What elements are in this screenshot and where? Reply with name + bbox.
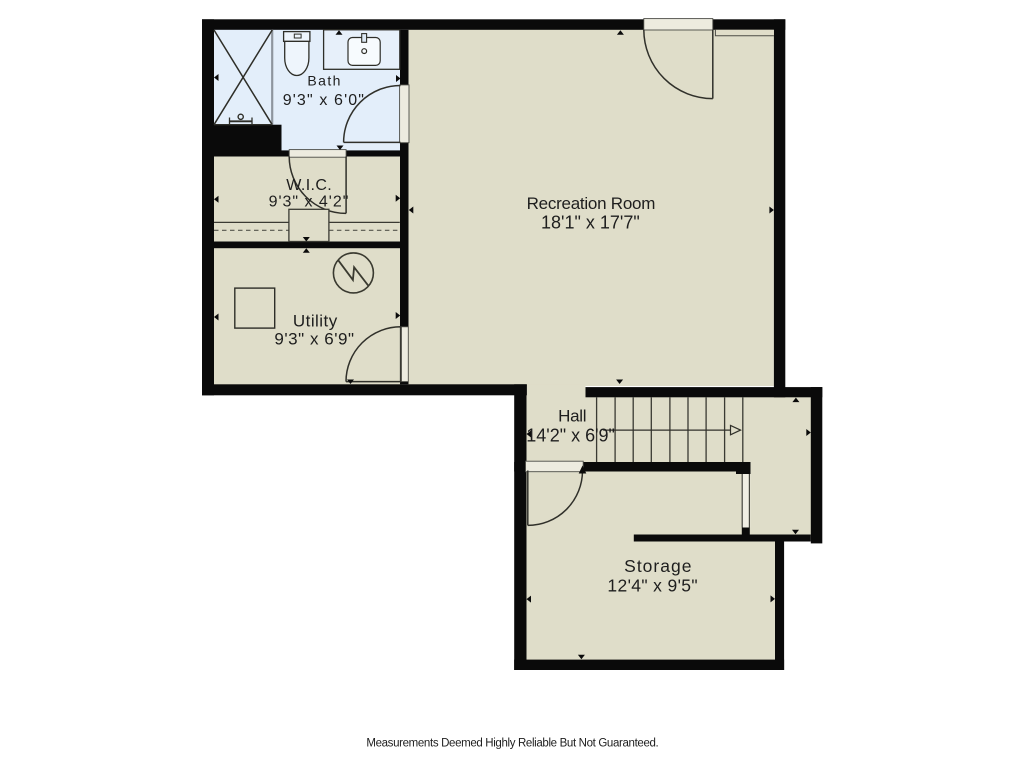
svg-text:Measurements Deemed Highly Rel: Measurements Deemed Highly Reliable But … bbox=[366, 738, 658, 750]
svg-text:Recreation Room: Recreation Room bbox=[527, 194, 656, 213]
svg-text:18'1" x 17'7": 18'1" x 17'7" bbox=[541, 213, 640, 233]
svg-text:9'3" x 4'2": 9'3" x 4'2" bbox=[269, 194, 350, 211]
svg-text:W.I.C.: W.I.C. bbox=[286, 177, 332, 194]
svg-text:12'4" x 9'5": 12'4" x 9'5" bbox=[607, 575, 698, 595]
svg-text:Storage: Storage bbox=[624, 556, 692, 576]
svg-text:Hall: Hall bbox=[558, 407, 586, 426]
svg-text:Utility: Utility bbox=[293, 311, 338, 330]
svg-text:Bath: Bath bbox=[307, 72, 341, 88]
svg-text:14'2" x 6'9": 14'2" x 6'9" bbox=[526, 425, 615, 445]
svg-text:9'3" x 6'0": 9'3" x 6'0" bbox=[283, 92, 365, 109]
svg-text:9'3" x 6'9": 9'3" x 6'9" bbox=[274, 330, 354, 349]
